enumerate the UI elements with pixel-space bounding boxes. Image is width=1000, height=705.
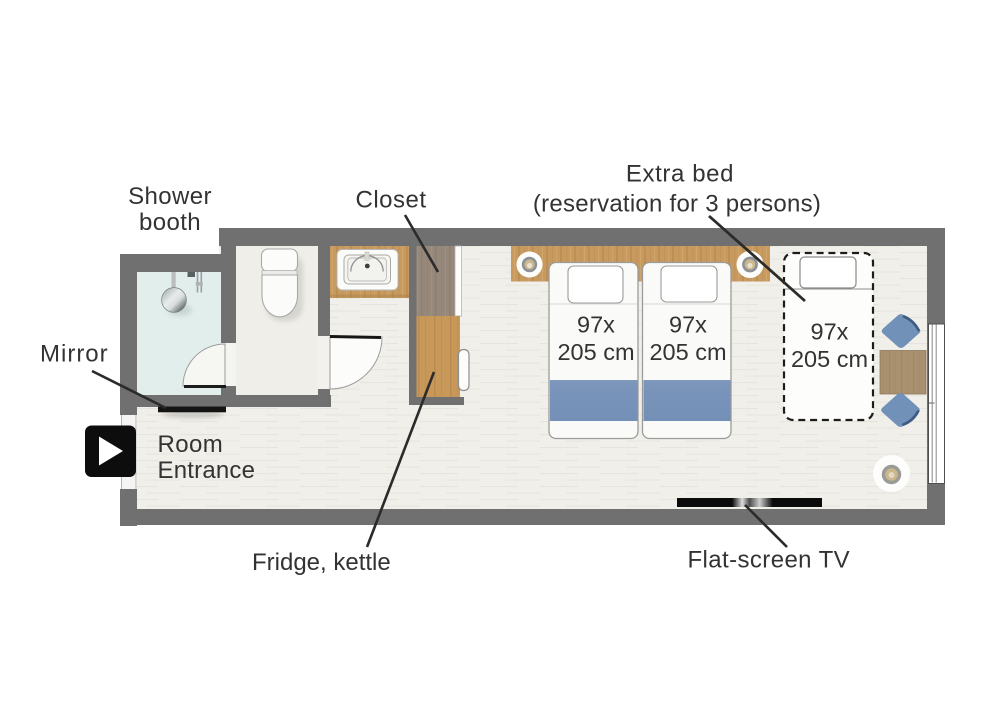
svg-text:97x: 97x xyxy=(811,319,849,345)
svg-text:Mirror: Mirror xyxy=(40,341,109,368)
svg-text:Extra bed: Extra bed xyxy=(626,161,734,188)
svg-text:Fridge, kettle: Fridge, kettle xyxy=(252,549,391,576)
svg-text:97x: 97x xyxy=(669,312,707,338)
svg-text:Shower: Shower xyxy=(128,183,212,210)
svg-text:205 cm: 205 cm xyxy=(649,339,726,365)
svg-text:205 cm: 205 cm xyxy=(557,339,634,365)
svg-text:Flat-screen TV: Flat-screen TV xyxy=(688,547,851,574)
svg-text:205 cm: 205 cm xyxy=(791,346,868,372)
svg-text:Room: Room xyxy=(158,431,224,458)
svg-text:97x: 97x xyxy=(577,312,615,338)
svg-text:Closet: Closet xyxy=(355,187,426,214)
svg-text:Entrance: Entrance xyxy=(158,457,256,484)
svg-text:(reservation for 3 persons): (reservation for 3 persons) xyxy=(533,191,821,218)
svg-text:booth: booth xyxy=(139,209,201,236)
